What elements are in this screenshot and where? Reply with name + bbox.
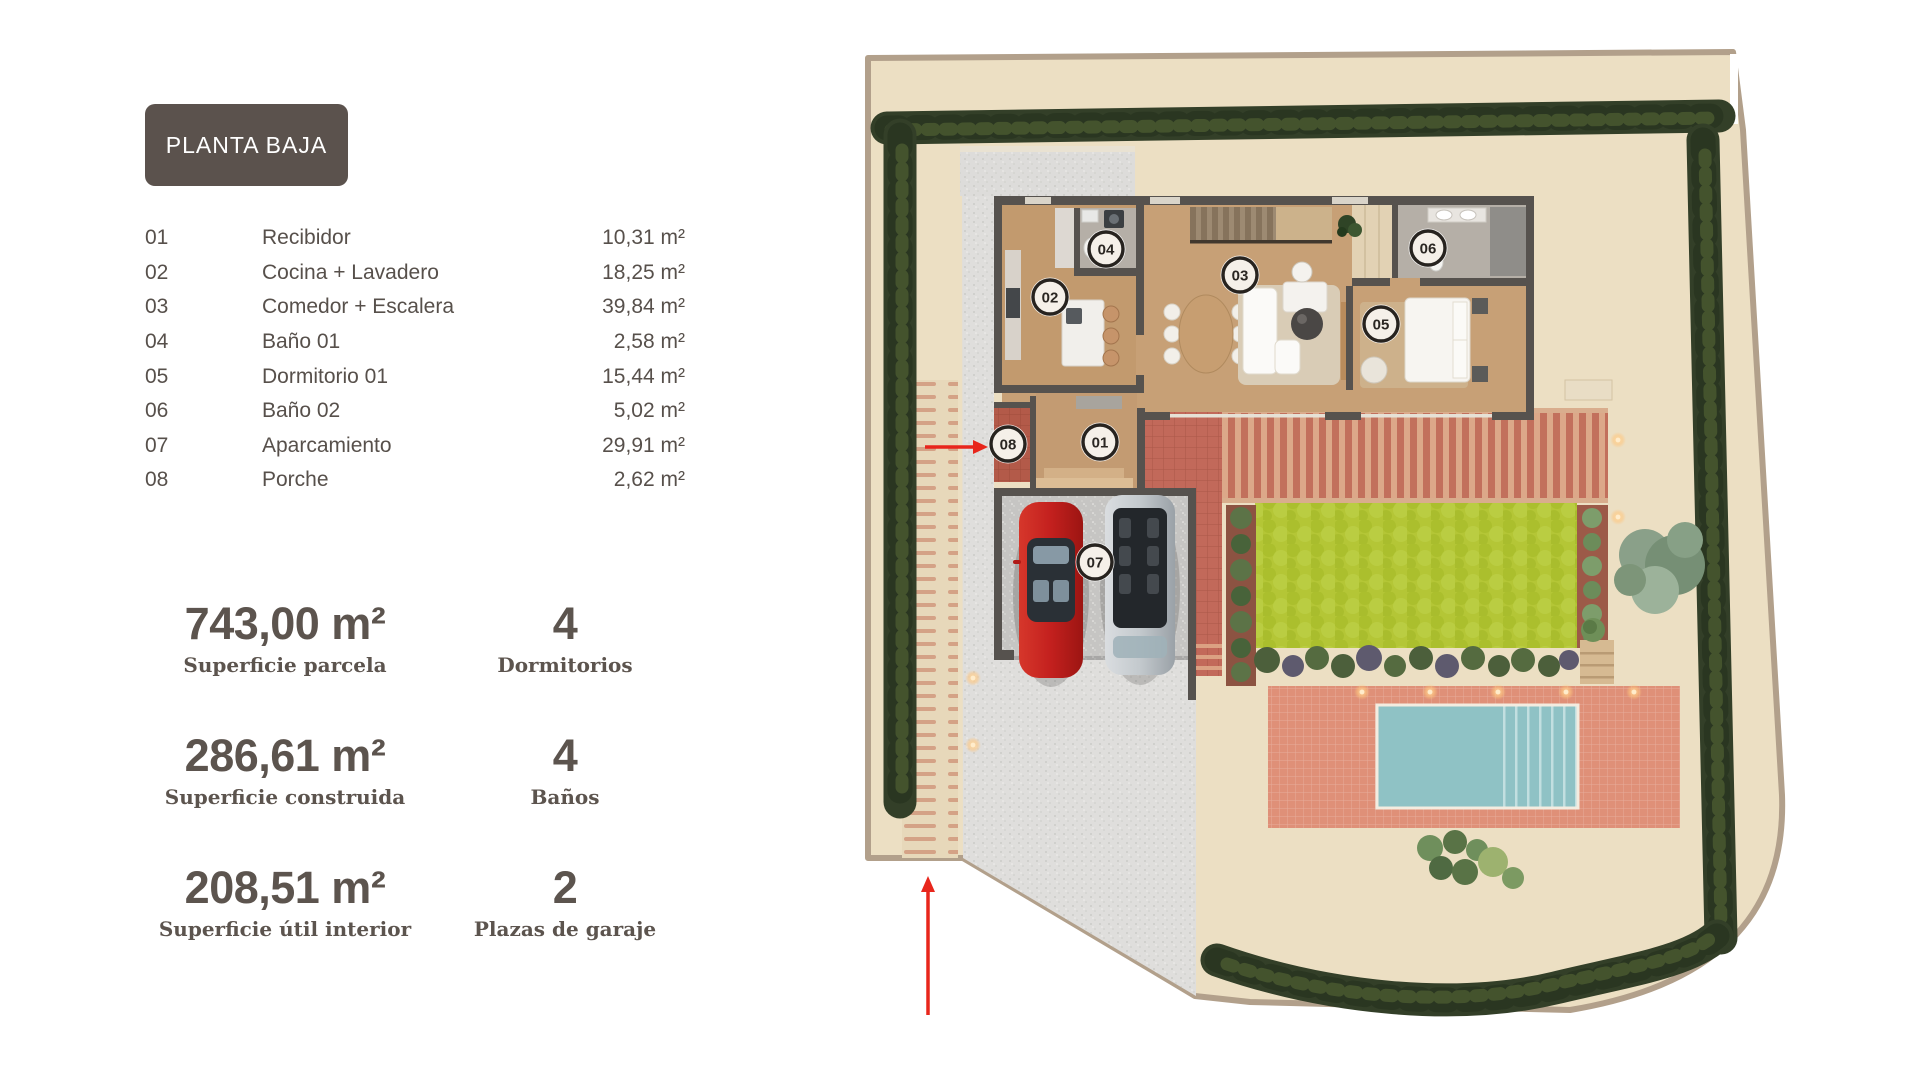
room-name: Dormitorio 01 xyxy=(262,365,517,389)
driveway-entry-arrowhead xyxy=(921,876,935,892)
wall-bath06-bottom xyxy=(1352,278,1390,286)
van-seat xyxy=(1147,518,1159,538)
garage-wall-left xyxy=(994,488,1002,660)
garage-wall-top xyxy=(994,488,1196,496)
patio-step xyxy=(1196,666,1222,670)
stats-row: 286,61 m² Superficie construida 4 Baños xyxy=(130,707,695,839)
floor-plan-svg: 01 02 03 04 05 06 07 08 xyxy=(855,40,1805,1060)
side-door-mat xyxy=(1565,380,1612,400)
stat-value: 4 xyxy=(440,733,690,778)
van-windshield xyxy=(1113,636,1167,658)
garden-step-line xyxy=(1580,676,1614,679)
dining-chair xyxy=(1164,304,1180,320)
patio-step xyxy=(1196,644,1222,648)
room-name: Comedor + Escalera xyxy=(262,295,517,319)
patio-step xyxy=(1196,655,1222,659)
room-area: 15,44 m² xyxy=(517,365,685,389)
wood-screen xyxy=(1341,302,1346,380)
oven xyxy=(1006,288,1020,318)
legend-row: 08 Porche 2,62 m² xyxy=(145,463,685,498)
van-seat xyxy=(1119,546,1131,566)
wall-hall-left xyxy=(1030,396,1036,488)
sink xyxy=(1436,210,1452,220)
window xyxy=(1150,197,1180,204)
stairs-treads xyxy=(1190,207,1276,243)
marker-05: 05 xyxy=(1362,305,1401,344)
legend-row: 05 Dormitorio 01 15,44 m² xyxy=(145,359,685,394)
nightstand xyxy=(1472,366,1488,382)
lawn xyxy=(1255,503,1577,648)
wall-top xyxy=(994,196,1534,205)
round-bush-shade xyxy=(1583,620,1597,634)
van-seat xyxy=(1147,574,1159,594)
van xyxy=(1100,495,1180,685)
room-area: 29,91 m² xyxy=(517,434,685,458)
room-area: 18,25 m² xyxy=(517,261,685,285)
dining-chair xyxy=(1164,348,1180,364)
stat-label: Dormitorios xyxy=(440,653,690,677)
window xyxy=(1332,197,1368,204)
nightstand xyxy=(1472,298,1488,314)
stat-interior-surface: 208,51 m² Superficie útil interior xyxy=(130,865,440,941)
svg-text:06: 06 xyxy=(1420,241,1437,258)
coffee-table xyxy=(1291,308,1323,340)
garage-wall-stub xyxy=(994,650,1014,660)
sliding-glass-door xyxy=(1361,414,1492,418)
sink xyxy=(1460,210,1476,220)
stool xyxy=(1103,328,1119,344)
sofa xyxy=(1243,288,1277,374)
stat-value: 208,51 m² xyxy=(130,865,440,910)
svg-text:03: 03 xyxy=(1232,268,1249,285)
wall-bath06-bottom2 xyxy=(1420,278,1526,286)
svg-text:05: 05 xyxy=(1373,317,1390,334)
entry-step xyxy=(1044,468,1124,478)
room-name: Baño 01 xyxy=(262,330,517,354)
room-name: Aparcamiento xyxy=(262,434,517,458)
wall-porch-top xyxy=(994,402,1030,408)
stool xyxy=(1103,350,1119,366)
pergola-beam xyxy=(1222,498,1608,503)
coffee-table-highlight xyxy=(1297,314,1307,324)
floor-selector-badge[interactable]: PLANTA BAJA xyxy=(145,104,348,186)
room-number: 02 xyxy=(145,261,262,285)
room-name: Cocina + Lavadero xyxy=(262,261,517,285)
room-number: 06 xyxy=(145,399,262,423)
floorplan-page: PLANTA BAJA 01 Recibidor 10,31 m² 02 Coc… xyxy=(0,0,1920,1080)
stat-bathrooms: 4 Baños xyxy=(440,733,690,809)
desk xyxy=(1283,282,1327,312)
marker-08: 08 xyxy=(989,425,1028,464)
wall-bottom-stub xyxy=(1325,412,1361,420)
van-seat xyxy=(1119,518,1131,538)
floor-plan-rendering: 01 02 03 04 05 06 07 08 xyxy=(855,40,1805,1060)
stat-label: Plazas de garaje xyxy=(440,917,690,941)
legend-row: 03 Comedor + Escalera 39,84 m² xyxy=(145,290,685,325)
legend-row: 02 Cocina + Lavadero 18,25 m² xyxy=(145,256,685,291)
legend-row: 07 Aparcamiento 29,91 m² xyxy=(145,429,685,464)
car-mirror xyxy=(1013,560,1021,564)
room-area: 2,58 m² xyxy=(517,330,685,354)
room-area: 10,31 m² xyxy=(517,226,685,250)
room-name: Baño 02 xyxy=(262,399,517,423)
van-seat xyxy=(1147,546,1159,566)
stat-label: Baños xyxy=(440,785,690,809)
stat-bedrooms: 4 Dormitorios xyxy=(440,601,690,677)
svg-text:08: 08 xyxy=(1000,437,1017,454)
car-seat xyxy=(1053,580,1069,602)
legend-row: 06 Baño 02 5,02 m² xyxy=(145,394,685,429)
stat-value: 743,00 m² xyxy=(130,601,440,646)
wall-hall-right xyxy=(1137,408,1145,488)
stool xyxy=(1103,306,1119,322)
svg-text:01: 01 xyxy=(1092,435,1109,452)
island-sink xyxy=(1066,308,1082,324)
car-seat xyxy=(1033,580,1049,602)
pergola-slats xyxy=(1222,408,1608,503)
room-number: 07 xyxy=(145,434,262,458)
svg-text:02: 02 xyxy=(1042,290,1059,307)
marker-07: 07 xyxy=(1076,543,1115,582)
room-number: 08 xyxy=(145,468,262,492)
room-area: 5,02 m² xyxy=(517,399,685,423)
stat-label: Superficie parcela xyxy=(130,653,440,677)
stat-built-surface: 286,61 m² Superficie construida xyxy=(130,733,440,809)
desk-chair xyxy=(1292,262,1312,282)
wall-right xyxy=(1526,196,1534,420)
wall-left xyxy=(994,196,1002,392)
room-area: 2,62 m² xyxy=(517,468,685,492)
stats-row: 743,00 m² Superficie parcela 4 Dormitori… xyxy=(130,575,695,707)
wall-kitchen-dining-stub xyxy=(1136,375,1144,385)
armchair xyxy=(1361,357,1387,383)
wall-bottom-stub xyxy=(1492,412,1534,420)
red-car xyxy=(1013,502,1089,687)
sliding-glass-door xyxy=(1170,414,1325,418)
closet xyxy=(1352,205,1392,278)
wall-bath04-left xyxy=(1074,208,1080,268)
svg-text:04: 04 xyxy=(1098,242,1115,259)
wall-bath04-bottom xyxy=(1074,268,1144,276)
marker-04: 04 xyxy=(1087,230,1126,269)
room-name: Recibidor xyxy=(262,226,517,250)
shower xyxy=(1490,207,1526,276)
stat-label: Superficie útil interior xyxy=(130,917,440,941)
stairs-edge xyxy=(1190,240,1332,244)
dining-chair xyxy=(1164,326,1180,342)
wall-bath06-left xyxy=(1392,205,1398,278)
room-area: 39,84 m² xyxy=(517,295,685,319)
marker-06: 06 xyxy=(1409,229,1448,268)
stat-garage-spaces: 2 Plazas de garaje xyxy=(440,865,690,941)
wall-kitchen-bottom xyxy=(994,385,1144,393)
room-number: 04 xyxy=(145,330,262,354)
stat-value: 286,61 m² xyxy=(130,733,440,778)
door-mat xyxy=(1076,396,1122,409)
upper-pad-texture xyxy=(960,152,1135,196)
garage-wall-right xyxy=(1188,488,1196,700)
room-number: 03 xyxy=(145,295,262,319)
marker-01: 01 xyxy=(1081,423,1120,462)
marker-02: 02 xyxy=(1031,278,1070,317)
stat-parcel-surface: 743,00 m² Superficie parcela xyxy=(130,601,440,677)
garden-step-line xyxy=(1580,652,1614,655)
window xyxy=(1025,197,1051,204)
garden-step-line xyxy=(1580,664,1614,667)
van-seat xyxy=(1119,574,1131,594)
washer-door xyxy=(1109,214,1119,224)
wall-bottom-stub xyxy=(1144,412,1170,420)
stat-value: 4 xyxy=(440,601,690,646)
bath-04-sink xyxy=(1082,210,1098,222)
stat-label: Superficie construida xyxy=(130,785,440,809)
wall-bedroom-left xyxy=(1346,286,1353,390)
stat-value: 2 xyxy=(440,865,690,910)
stats-row: 208,51 m² Superficie útil interior 2 Pla… xyxy=(130,839,695,971)
legend-row: 04 Baño 01 2,58 m² xyxy=(145,325,685,360)
car-windshield xyxy=(1033,546,1069,564)
room-legend: 01 Recibidor 10,31 m² 02 Cocina + Lavade… xyxy=(145,221,685,498)
driveway-light-core xyxy=(971,676,976,681)
room-number: 05 xyxy=(145,365,262,389)
pad-edge xyxy=(960,146,1135,152)
sofa-chaise xyxy=(1275,340,1300,374)
room-name: Porche xyxy=(262,468,517,492)
stairs-landing xyxy=(1276,207,1332,243)
pool-steps xyxy=(1500,705,1578,808)
marker-03: 03 xyxy=(1221,256,1260,295)
driveway-light-core xyxy=(971,743,976,748)
dining-table xyxy=(1179,295,1233,373)
legend-row: 01 Recibidor 10,31 m² xyxy=(145,221,685,256)
dining-set xyxy=(1164,295,1248,373)
room-number: 01 xyxy=(145,226,262,250)
summary-stats: 743,00 m² Superficie parcela 4 Dormitori… xyxy=(130,575,695,971)
svg-text:07: 07 xyxy=(1087,555,1104,572)
